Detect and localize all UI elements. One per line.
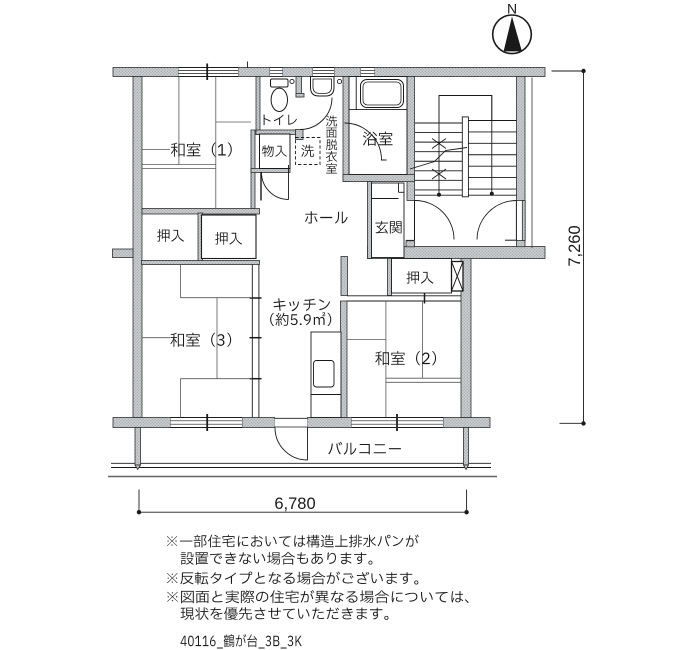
svg-text:7,260: 7,260 <box>566 225 584 266</box>
svg-text:N: N <box>507 1 517 17</box>
svg-text:6,780: 6,780 <box>274 495 315 513</box>
